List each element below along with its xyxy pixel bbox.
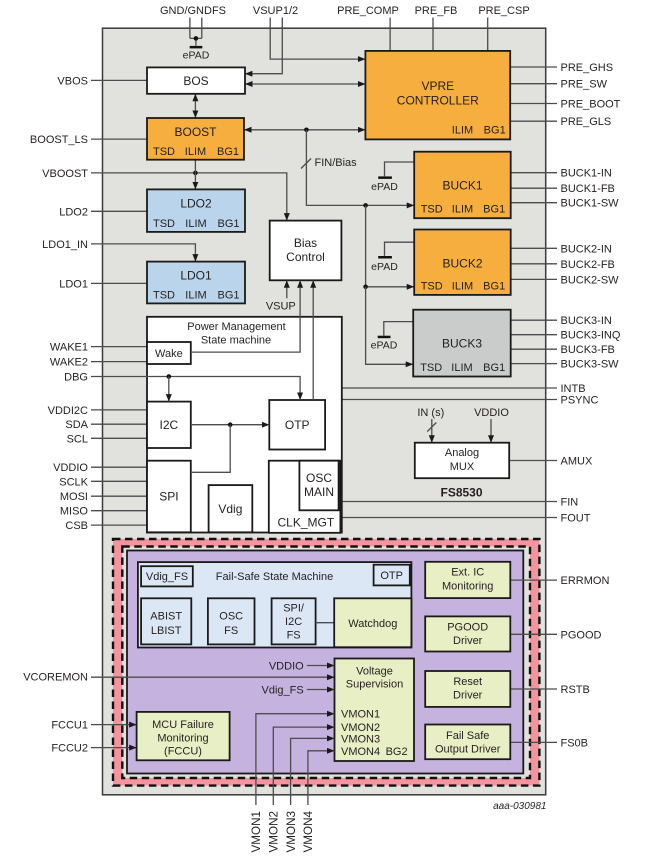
- svg-text:VDDI2C: VDDI2C: [48, 405, 88, 417]
- svg-text:BUCK3: BUCK3: [442, 337, 482, 351]
- svg-text:ePAD: ePAD: [371, 181, 398, 193]
- svg-text:FOUT: FOUT: [561, 513, 591, 525]
- svg-text:VMON1: VMON1: [341, 709, 380, 721]
- svg-text:FS0B: FS0B: [561, 737, 589, 749]
- svg-text:OTP: OTP: [380, 570, 403, 582]
- svg-text:Output Driver: Output Driver: [435, 744, 501, 756]
- svg-text:PRE_GHS: PRE_GHS: [561, 62, 614, 74]
- svg-text:ILIM: ILIM: [452, 125, 473, 137]
- svg-text:DBG: DBG: [64, 371, 88, 383]
- svg-text:PRE_FB: PRE_FB: [415, 5, 458, 17]
- svg-text:Control: Control: [286, 250, 325, 264]
- svg-text:PRE_CSP: PRE_CSP: [478, 5, 529, 17]
- svg-text:VMON3: VMON3: [285, 811, 298, 853]
- svg-text:VCOREMON: VCOREMON: [23, 672, 88, 684]
- svg-text:VSUP1/2: VSUP1/2: [253, 5, 298, 17]
- svg-text:ILIM: ILIM: [451, 362, 472, 374]
- svg-text:ePAD: ePAD: [371, 261, 398, 273]
- svg-text:ePAD: ePAD: [371, 340, 398, 352]
- svg-text:MAIN: MAIN: [304, 485, 334, 499]
- svg-text:FS8530: FS8530: [440, 486, 482, 500]
- svg-text:PRE_GLS: PRE_GLS: [561, 116, 612, 128]
- svg-text:PSYNC: PSYNC: [561, 395, 599, 407]
- svg-text:BG1: BG1: [217, 289, 239, 301]
- svg-text:BUCK1-FB: BUCK1-FB: [561, 183, 615, 195]
- svg-text:I2C: I2C: [285, 616, 302, 628]
- svg-text:VMON1: VMON1: [250, 811, 263, 853]
- svg-text:BUCK2-SW: BUCK2-SW: [561, 274, 620, 286]
- svg-text:ERRMON: ERRMON: [561, 575, 610, 587]
- svg-text:VMON4: VMON4: [302, 810, 315, 852]
- svg-text:FIN/Bias: FIN/Bias: [315, 157, 358, 169]
- svg-text:Analog: Analog: [445, 447, 479, 459]
- svg-text:LDO1_IN: LDO1_IN: [42, 239, 88, 251]
- svg-text:TSD: TSD: [421, 204, 443, 216]
- svg-text:VMON3: VMON3: [341, 733, 380, 745]
- svg-text:VMON2: VMON2: [341, 722, 380, 734]
- svg-text:INTB: INTB: [561, 383, 586, 395]
- svg-text:BUCK3-INQ: BUCK3-INQ: [561, 330, 621, 342]
- svg-text:TSD: TSD: [421, 280, 443, 292]
- svg-text:PRE_SW: PRE_SW: [561, 79, 608, 91]
- svg-text:OTP: OTP: [285, 418, 310, 432]
- svg-text:WAKE1: WAKE1: [50, 342, 88, 354]
- svg-text:VMON2: VMON2: [268, 811, 281, 853]
- svg-text:LDO2: LDO2: [59, 206, 88, 218]
- svg-text:MUX: MUX: [450, 461, 475, 473]
- svg-text:Vdig_FS: Vdig_FS: [146, 571, 188, 583]
- svg-text:ILIM: ILIM: [185, 218, 206, 230]
- svg-text:ABIST: ABIST: [150, 611, 182, 623]
- svg-text:Monitoring: Monitoring: [442, 581, 493, 593]
- svg-text:Voltage: Voltage: [356, 666, 393, 678]
- svg-text:BUCK3-SW: BUCK3-SW: [561, 359, 620, 371]
- svg-text:ePAD: ePAD: [183, 50, 210, 62]
- svg-text:SCL: SCL: [67, 433, 88, 445]
- svg-text:BG1: BG1: [483, 280, 505, 292]
- svg-text:BG2: BG2: [386, 746, 408, 758]
- svg-text:FS: FS: [224, 625, 238, 637]
- svg-text:PRE_COMP: PRE_COMP: [337, 5, 399, 17]
- svg-text:BG1: BG1: [483, 362, 505, 374]
- svg-text:TSD: TSD: [153, 146, 175, 158]
- svg-text:IN (s): IN (s): [417, 407, 444, 419]
- svg-text:LDO1: LDO1: [59, 278, 88, 290]
- svg-text:MCU Failure: MCU Failure: [152, 719, 214, 731]
- svg-text:BOOST_LS: BOOST_LS: [30, 134, 88, 146]
- svg-text:Watchdog: Watchdog: [348, 618, 397, 630]
- svg-text:BUCK2-IN: BUCK2-IN: [561, 243, 612, 255]
- svg-text:BUCK3-FB: BUCK3-FB: [561, 344, 615, 356]
- svg-text:VDDIO: VDDIO: [269, 661, 304, 673]
- svg-text:Reset: Reset: [453, 676, 482, 688]
- svg-text:SPI/: SPI/: [283, 603, 305, 615]
- svg-text:BUCK1-SW: BUCK1-SW: [561, 198, 620, 210]
- svg-text:Driver: Driver: [453, 690, 483, 702]
- svg-text:BUCK2: BUCK2: [442, 257, 482, 271]
- svg-text:BG1: BG1: [483, 204, 505, 216]
- svg-text:BG1: BG1: [484, 125, 506, 137]
- svg-text:PGOOD: PGOOD: [447, 622, 488, 634]
- svg-text:FIN: FIN: [561, 497, 579, 509]
- svg-text:RSTB: RSTB: [561, 684, 590, 696]
- svg-text:(FCCU): (FCCU): [164, 746, 202, 758]
- svg-text:BOOST: BOOST: [174, 125, 217, 139]
- svg-text:PRE_BOOT: PRE_BOOT: [561, 99, 621, 111]
- svg-text:PGOOD: PGOOD: [561, 629, 602, 641]
- svg-text:ILIM: ILIM: [452, 204, 473, 216]
- svg-text:SDA: SDA: [65, 419, 88, 431]
- svg-text:BUCK2-FB: BUCK2-FB: [561, 259, 615, 271]
- svg-text:AMUX: AMUX: [561, 456, 593, 468]
- svg-text:VSUP: VSUP: [266, 300, 296, 312]
- svg-text:Fail-Safe State Machine: Fail-Safe State Machine: [216, 571, 333, 583]
- svg-text:SCLK: SCLK: [59, 476, 88, 488]
- svg-text:Wake: Wake: [155, 348, 183, 360]
- svg-text:Vdig_FS: Vdig_FS: [261, 685, 303, 697]
- svg-text:VBOOST: VBOOST: [42, 168, 88, 180]
- svg-text:TSD: TSD: [153, 218, 175, 230]
- svg-text:LDO1: LDO1: [180, 268, 212, 282]
- svg-text:TSD: TSD: [153, 289, 175, 301]
- svg-text:OSC: OSC: [306, 471, 332, 485]
- svg-text:FS: FS: [287, 630, 301, 642]
- svg-text:BOS: BOS: [183, 74, 208, 88]
- svg-text:GND/GNDFS: GND/GNDFS: [160, 5, 226, 17]
- svg-text:VPRE: VPRE: [421, 79, 454, 93]
- svg-text:LDO2: LDO2: [180, 196, 212, 210]
- svg-text:BUCK1: BUCK1: [442, 179, 482, 193]
- svg-text:Vdig: Vdig: [218, 502, 242, 516]
- svg-text:MISO: MISO: [60, 506, 89, 518]
- svg-text:aaa-030981: aaa-030981: [493, 801, 546, 812]
- svg-text:ILIM: ILIM: [185, 146, 206, 158]
- svg-text:VMON4: VMON4: [341, 746, 380, 758]
- svg-text:FCCU1: FCCU1: [51, 720, 88, 732]
- svg-text:Supervision: Supervision: [346, 679, 403, 691]
- svg-text:ILIM: ILIM: [185, 289, 206, 301]
- svg-text:CSB: CSB: [65, 520, 88, 532]
- svg-text:SPI: SPI: [159, 490, 178, 504]
- svg-text:MOSI: MOSI: [60, 491, 88, 503]
- svg-text:FCCU2: FCCU2: [51, 743, 88, 755]
- svg-text:VDDIO: VDDIO: [53, 462, 88, 474]
- svg-text:Fail Safe: Fail Safe: [446, 730, 489, 742]
- svg-text:BG1: BG1: [217, 146, 239, 158]
- svg-text:VDDIO: VDDIO: [474, 407, 509, 419]
- svg-text:BG1: BG1: [217, 218, 239, 230]
- svg-text:Bias: Bias: [294, 236, 317, 250]
- svg-text:VBOS: VBOS: [57, 75, 88, 87]
- svg-text:BUCK3-IN: BUCK3-IN: [561, 315, 612, 327]
- svg-text:TSD: TSD: [420, 362, 442, 374]
- svg-text:Power Management: Power Management: [187, 321, 285, 333]
- svg-text:Driver: Driver: [453, 635, 483, 647]
- svg-text:Ext. IC: Ext. IC: [451, 567, 484, 579]
- svg-text:CLK_MGT: CLK_MGT: [278, 516, 335, 530]
- svg-text:BUCK1-IN: BUCK1-IN: [561, 168, 612, 180]
- svg-text:LBIST: LBIST: [151, 625, 182, 637]
- svg-text:ILIM: ILIM: [452, 280, 473, 292]
- svg-text:WAKE2: WAKE2: [50, 357, 88, 369]
- svg-text:Monitoring: Monitoring: [157, 733, 208, 745]
- svg-text:State machine: State machine: [201, 335, 271, 347]
- svg-text:CONTROLLER: CONTROLLER: [397, 94, 479, 108]
- svg-text:I2C: I2C: [160, 418, 179, 432]
- svg-text:OSC: OSC: [219, 611, 243, 623]
